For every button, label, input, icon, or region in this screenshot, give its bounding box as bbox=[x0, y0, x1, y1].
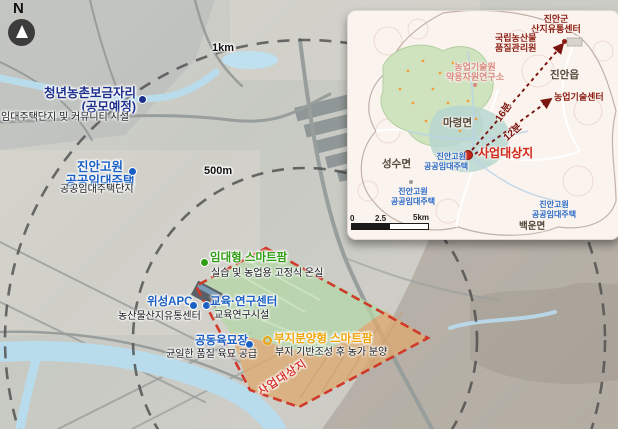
inset-poi-sanji-line1: 진안군 bbox=[526, 14, 586, 24]
marker-nursery-title: 공동육묘장 bbox=[195, 335, 248, 348]
inset-poi-rental-se: 진안고원 공공임대주택 bbox=[531, 200, 577, 219]
inset-poi-quality-line2: 품질관리원 bbox=[495, 43, 535, 53]
marker-edu-center-desc: 교육연구시설 bbox=[214, 310, 269, 322]
inset-district-baegun: 백운면 bbox=[519, 222, 545, 233]
inset-poi-herb-dot bbox=[473, 83, 477, 87]
inset-poi-herb-line1: 농업기술원 bbox=[443, 62, 507, 72]
marker-apc-dot bbox=[189, 301, 198, 310]
inset-poi-rental-center-line2: 공공임대주택 bbox=[424, 162, 466, 172]
inset-overview-map: 진안군 산지유통센터 국립농산물 품질관리원 농업기술원 약용자원연구소 진안읍… bbox=[347, 10, 618, 240]
marker-nursery-dot bbox=[245, 340, 254, 349]
inset-map-art bbox=[348, 11, 618, 239]
inset-poi-agri-tech-center: 농업기술센터 bbox=[554, 92, 604, 102]
marker-youth-housing: 청년농촌보금자리 (공모예정) bbox=[24, 86, 136, 115]
inset-district-maryeong: 마령면 bbox=[443, 117, 472, 129]
inset-poi-rental-se-line1: 진안고원 bbox=[531, 200, 577, 210]
marker-public-rental-desc: 공공임대주택단지 bbox=[60, 184, 134, 196]
inset-district-seongsu: 성수면 bbox=[382, 158, 411, 170]
inset-scalebar bbox=[351, 223, 429, 230]
marker-youth-housing-line1: 청년농촌보금자리 bbox=[24, 86, 136, 100]
ring-label-500m: 500m bbox=[204, 165, 232, 178]
marker-apc-title: 위성APC bbox=[147, 296, 192, 309]
inset-scalebar-mid: 2.5 bbox=[375, 214, 386, 223]
marker-public-rental-line1: 진안고원 bbox=[62, 160, 138, 174]
inset-poi-rental-se-line2: 공공임대주택 bbox=[531, 210, 577, 220]
ring-label-1km: 1km bbox=[212, 42, 234, 55]
marker-edu-center-title: 교육·연구센터 bbox=[210, 296, 277, 309]
inset-poi-sanji-dot bbox=[562, 39, 567, 44]
inset-poi-quality-office: 국립농산물 품질관리원 bbox=[495, 33, 535, 54]
inset-poi-rental-center: 진안고원 공공임대주택 bbox=[424, 152, 466, 171]
marker-lot-smartfarm-desc: 부지 기반조성 후 농가 분양 bbox=[275, 347, 387, 359]
marker-youth-housing-desc: 임대주택단지 및 커뮤니티 시설 bbox=[1, 112, 129, 124]
inset-site-label: 사업대상지 bbox=[478, 147, 533, 161]
marker-public-rental-dot bbox=[128, 167, 137, 176]
marker-nursery-desc: 균일한 품질 육묘 공급 bbox=[166, 349, 257, 361]
inset-scalebar-end: 5km bbox=[413, 213, 429, 222]
inset-poi-herb-institute: 농업기술원 약용자원연구소 bbox=[443, 62, 507, 83]
inset-scalebar-zero: 0 bbox=[350, 214, 354, 223]
marker-lot-smartfarm-title: 부지분양형 스마트팜 bbox=[274, 333, 372, 346]
marker-rental-smartfarm-dot bbox=[200, 258, 209, 267]
inset-poi-rental-sw-line2: 공공임대주택 bbox=[390, 197, 436, 207]
inset-poi-rental-center-line1: 진안고원 bbox=[424, 152, 466, 162]
inset-district-jinan-eup: 진안읍 bbox=[550, 69, 579, 81]
marker-rental-smartfarm-title: 임대형 스마트팜 bbox=[210, 252, 287, 265]
marker-lot-smartfarm-ring bbox=[263, 336, 272, 345]
compass-arrow-icon bbox=[8, 19, 35, 46]
inset-poi-herb-line2: 약용자원연구소 bbox=[443, 72, 507, 82]
marker-rental-smartfarm-desc: 실습 및 농업용 고정식 온실 bbox=[211, 268, 323, 280]
map-screenshot: N 1km 500m 청년농촌보금자리 (공모예정) 임대주택단지 및 커뮤니티… bbox=[0, 0, 618, 429]
inset-poi-quality-line1: 국립농산물 bbox=[495, 33, 535, 43]
inset-poi-rental-sw: 진안고원 공공임대주택 bbox=[390, 187, 436, 206]
inset-poi-rental-sw-line1: 진안고원 bbox=[390, 187, 436, 197]
inset-poi-rental-sw-dot bbox=[409, 180, 413, 184]
marker-youth-housing-dot bbox=[138, 95, 147, 104]
marker-apc-desc: 농산물산지유통센터 bbox=[118, 311, 201, 323]
inset-poi-sanji-center: 진안군 산지유통센터 bbox=[526, 14, 586, 35]
compass-north-label: N bbox=[13, 0, 24, 17]
